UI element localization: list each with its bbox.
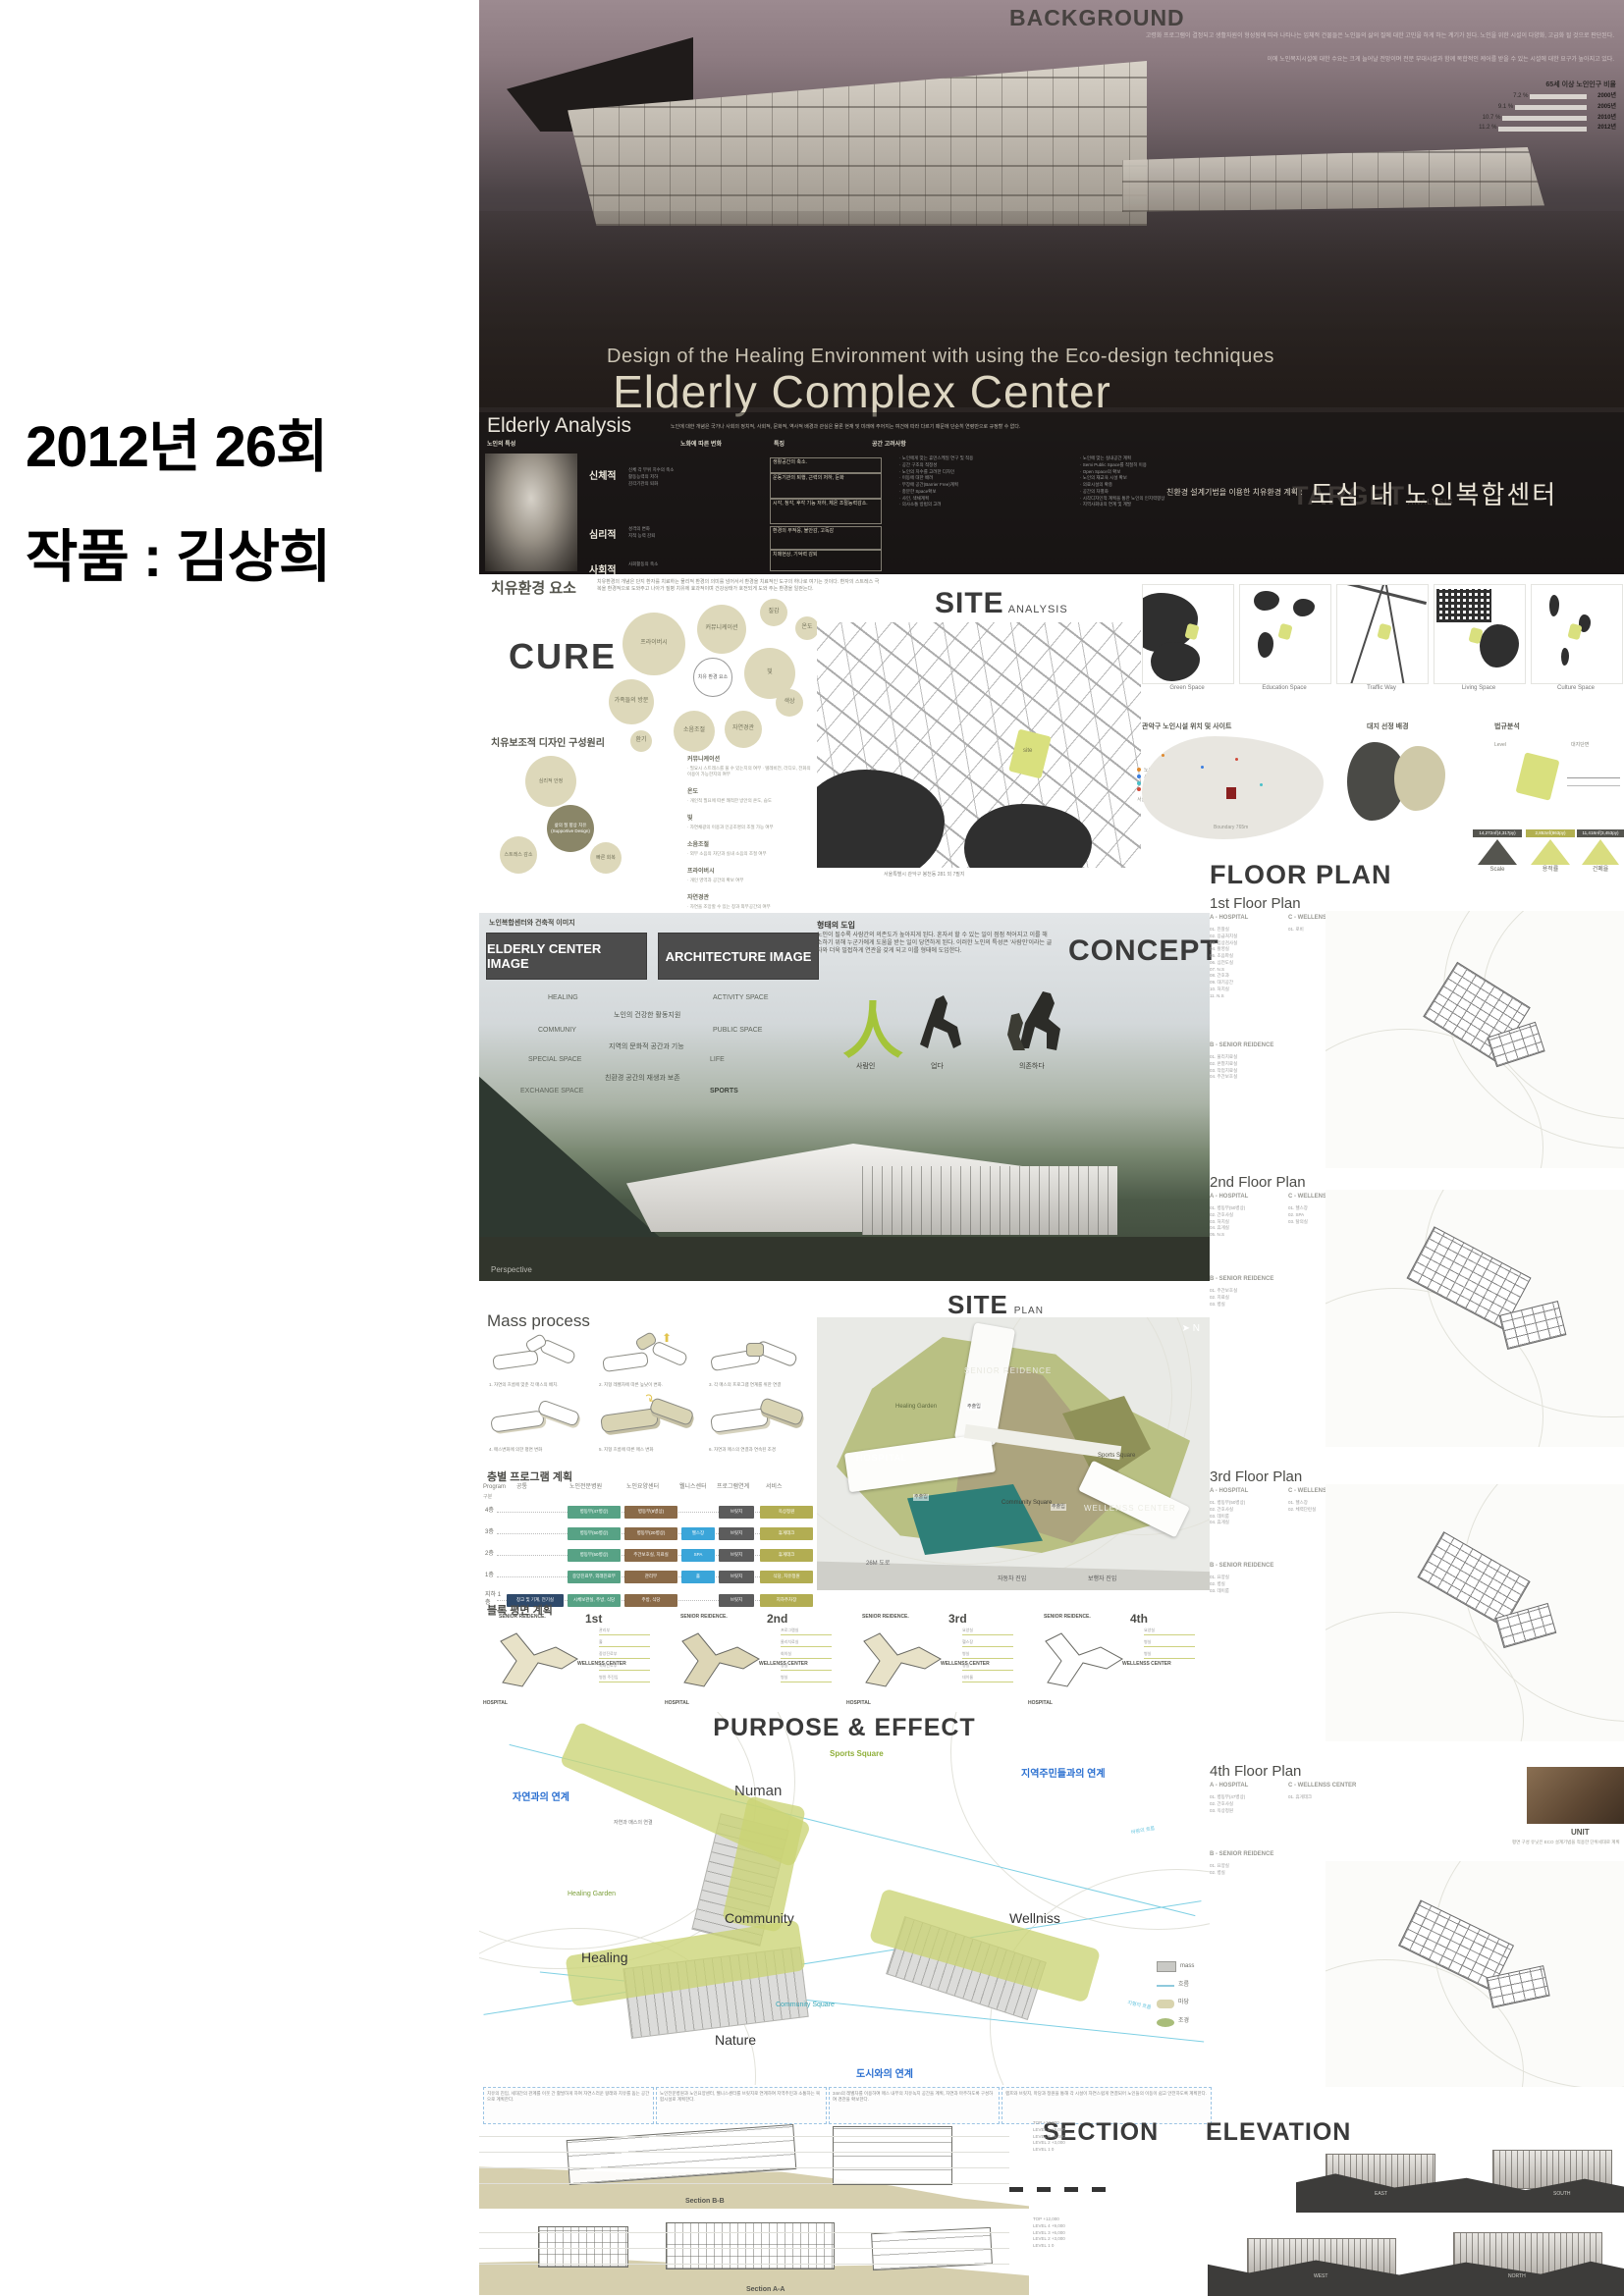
block-plan-4: SENIOR REIDENCE. 4th WELLENSS CENTER HOS… — [1028, 1614, 1205, 1708]
perspective-label: Perspective — [491, 1265, 532, 1275]
table-header: 프로그램연계 — [717, 1484, 749, 1492]
analysis-band: Elderly Analysis 노인에 대한 개념은 국가나 사회의 정치적,… — [479, 412, 1624, 574]
room-list-a: 01. 병동부(47병상)02. 간호사실03. 옥상정원 — [1210, 1794, 1274, 1814]
room-item: 03. 옥상정원 — [1210, 1808, 1274, 1815]
healing-factor-diagram: 프라이버시 커뮤니케이션 질감 온도 가족들의 방문 빛 환기 소음조절 자연경… — [579, 591, 835, 770]
chart-bar-row: 9.1 % 2005년 — [1471, 104, 1616, 112]
map-blob — [1480, 624, 1519, 667]
program-cell: 식당, 치유정원 — [760, 1571, 813, 1583]
mass-step-caption: 1. 자연의 흐름에 맞춘 각 매스의 배치. — [489, 1382, 587, 1388]
level-label: LEVEL 1 0 — [1033, 2147, 1121, 2154]
bar-category-label: 2000년 — [1587, 93, 1616, 101]
concept-title: CONCEPT — [1068, 934, 1219, 968]
room-item: 02. 치료실 — [1210, 1295, 1274, 1302]
site-analysis-sub: ANALYSIS — [1008, 604, 1068, 615]
legend-dot — [1137, 774, 1141, 778]
section-bb-label: Section B-B — [685, 2197, 725, 2206]
floor-plan-title: FLOOR PLAN — [1210, 860, 1392, 890]
callout-label: 데이룸 — [962, 1675, 1013, 1682]
block-hospital-label: HOSPITAL — [1028, 1700, 1053, 1707]
label-road: 26M 도로 — [866, 1561, 890, 1569]
principle-term: 커뮤니케이션 — [687, 757, 720, 763]
elderly-population-chart: 65세 이상 노인인구 비율 7.2 % 2000년 9.1 % 2005년 1… — [1471, 80, 1616, 133]
room-item: 08. 간호과 — [1210, 973, 1274, 980]
presentation-board: 2012년 26회 작품 : 김상희 BACKGROUND 고령화 프로그램이 … — [0, 0, 1624, 2296]
room-item: 04. 휴게실 — [1210, 1225, 1274, 1232]
mass-step-figure — [707, 1398, 809, 1443]
callout-label: 회의실 — [781, 1651, 832, 1659]
korean-subtitle: 친환경 설계기법을 이용한 치유환경 계획 : 도심 내 노인복합센터 — [1166, 475, 1557, 511]
program-cell: 브릿지 — [719, 1527, 754, 1540]
scale-bar — [1009, 2187, 1117, 2192]
program-cell: 브릿지 — [719, 1571, 754, 1583]
site-section-line — [1567, 777, 1620, 778]
section-bb-drawing — [479, 2118, 1029, 2209]
room-list-b: 01. 물리치료실02. 온열치료실03. 작업치료실04. 주간보호실 — [1210, 1054, 1274, 1081]
program-cell: 병동부(50병상) — [568, 1549, 621, 1562]
room-item: 11. N.S — [1210, 993, 1274, 1000]
concept-subheader: 노인복합센터와 건축적 이미지 — [489, 919, 575, 928]
bar-value-label: 11.2 % — [1479, 125, 1496, 133]
changes-list: 사회활동의 축소 — [628, 561, 676, 568]
legend-label: 흐름 — [1178, 1982, 1189, 1990]
figure-carrying-icon — [918, 993, 969, 1054]
program-cell: 브릿지 — [719, 1594, 754, 1607]
site-plan-drawing: SENIOR REIDENCE Healing Garden HOSPITAL … — [817, 1317, 1210, 1590]
program-cell: 중앙진료부, 외래진료부 — [568, 1571, 621, 1583]
map-caption: 서울특별시 관악구 봉천동 281 외 7필지 — [884, 872, 964, 879]
legend-planting-icon — [1157, 2018, 1174, 2027]
table-header: 노인전문병원 — [569, 1484, 602, 1492]
program-cell: 관리부 — [624, 1571, 677, 1583]
plan-sub-b: B - SENIOR REIDENCE — [1210, 1042, 1273, 1050]
consideration-item: · 노인에게 맞는 휴먼스케일 연구 및 적용 — [899, 455, 1074, 462]
mass-step-figure: ↷ — [597, 1398, 699, 1443]
principle-desc: · 자연채광의 이용과 인공조명의 조절 가능 여부 — [687, 825, 813, 830]
plan-sub-b: B - SENIOR REIDENCE — [1210, 1851, 1273, 1859]
room-item: 01. 병동부(50병상) — [1210, 1205, 1274, 1212]
consideration-item: · Semi Public Space를 적절히 이용 — [1080, 462, 1267, 469]
col-header: 공간 고려사항 — [872, 442, 906, 450]
consideration-item: · 무장애 공간(Barrier Free)계획 — [899, 482, 1074, 489]
north-arrow-icon: ➤ N — [1182, 1323, 1200, 1334]
consideration-item: · 충분한 Space확보 — [899, 489, 1074, 496]
elevation-row-1: EAST SOUTH — [1296, 2132, 1624, 2213]
label-numan: Numan — [734, 1783, 782, 1799]
level-label: Level — [1494, 742, 1506, 749]
figure-label: 의존하다 — [1019, 1062, 1045, 1071]
change-item: 신체 각 부위 치수의 축소 — [628, 467, 676, 474]
program-plan-title: 층별 프로그램 계획 — [487, 1468, 572, 1484]
stat-far: 2,853㎡(863py) 용적률 — [1526, 829, 1575, 875]
concept-right-item: ACTIVITY SPACE — [713, 993, 769, 1002]
mass-process-grid: ⬆ ↷ — [487, 1335, 815, 1463]
bar-value-label: 9.1 % — [1498, 104, 1513, 112]
bubble-center: 치유 환경 요소 — [693, 658, 732, 697]
map-blob — [1394, 746, 1445, 811]
purpose-legend: mass 흐름 마당 조경 — [1157, 1961, 1194, 2027]
label-community-square: Community Square — [776, 2001, 835, 2009]
program-cell: 병동부(47병상) — [568, 1506, 621, 1519]
room-item: 01. 물리치료실 — [1210, 1054, 1274, 1061]
bubble: 색상 — [776, 689, 803, 717]
block-massing-icon — [483, 1626, 591, 1694]
label-ped-entry: 보행자 진입 — [1088, 1576, 1116, 1584]
diagram-satellite: 스트레스 감소 — [500, 836, 537, 874]
block-ordinal: 2nd — [767, 1612, 787, 1626]
room-item: 03. 데이룸 — [1210, 1588, 1274, 1595]
dense-block — [1436, 589, 1491, 622]
board-caption-author: 작품 : 김상희 — [26, 510, 330, 593]
table-header: Program — [483, 1484, 506, 1492]
site-highlight — [1184, 623, 1199, 640]
block-hospital-label: HOSPITAL — [665, 1700, 689, 1707]
bar-category-label: 2012년 — [1587, 125, 1616, 133]
background-paragraph-1: 고령화 프로그램이 결정되고 생활자원이 형성됨에 따라 나타나는 입체적 건물… — [1108, 33, 1614, 41]
map-caption: Living Space — [1434, 685, 1524, 693]
room-item: 03. 병실 — [1210, 1302, 1274, 1308]
label-healing: Healing — [581, 1949, 627, 1965]
background-title: BACKGROUND — [1009, 5, 1185, 31]
callout-label: 물리치료실 — [781, 1639, 832, 1647]
level-label: LEVEL 3 +6,000 — [1033, 2230, 1121, 2237]
block-callouts: 요양실헬스장병실병실데이룸 — [962, 1628, 1013, 1686]
elderly-analysis-note: 노인에 대한 개념은 국가나 사회의 정치적, 사회적, 문화적, 역사적 배경… — [671, 424, 1220, 431]
block-senior-label: SENIOR REIDENCE. — [499, 1614, 546, 1621]
room-item: 02. 간호사실 — [1210, 1507, 1274, 1514]
room-list-b: 01. 주간보호실02. 치료실03. 병실 — [1210, 1288, 1274, 1308]
bubble: 프라이버시 — [623, 613, 685, 675]
consideration-item: · 공간 구조의 적정성 — [899, 462, 1074, 469]
label-car-entry: 자동차 진입 — [998, 1576, 1026, 1584]
level-label: TOP +12,000 — [1033, 2216, 1121, 2223]
plan-sub-c: C - WELLENSS CENTER — [1288, 1783, 1356, 1790]
bubble: 자연경관 — [725, 711, 762, 748]
label-entry: 주출입 — [913, 1494, 929, 1501]
site-shape — [1515, 752, 1559, 800]
unit-photo — [1527, 1767, 1624, 1824]
site-highlight — [1377, 623, 1391, 640]
plan-sub-a: A - HOSPITAL — [1210, 1488, 1248, 1496]
room-list-c: 01. 휴게데크 — [1288, 1794, 1357, 1801]
map-blob — [1561, 648, 1569, 666]
change-item: 활동능력의 저하 — [628, 474, 676, 481]
block-massing-icon — [846, 1626, 954, 1694]
concept-mid-item: 노인의 건강한 활동지원 — [614, 1011, 680, 1020]
building-render-wing — [862, 1166, 1117, 1235]
principle-term: 프라이버시 — [687, 869, 715, 875]
col-header: 특징 — [774, 442, 785, 450]
block-hospital-label: HOSPITAL — [846, 1700, 871, 1707]
room-list-a: 01. 병동부(50병상)02. 간호사실03. 데이룸04. 휴게실 — [1210, 1500, 1274, 1526]
site-highlight — [1277, 623, 1292, 640]
mass-step-caption: 6. 자연과 매스의 연결과 연속된 조경 — [709, 1447, 811, 1453]
legend-dot — [1137, 768, 1141, 772]
background-paragraph-2: 이에 노인복지시설에 대한 수요는 크게 늘어날 전망이며 전문 부대시설과 함… — [1166, 57, 1614, 65]
room-item: 09. 대기공간 — [1210, 980, 1274, 987]
room-list-b: 01. 요양실02. 병실 — [1210, 1863, 1274, 1877]
site-selection-map — [1343, 736, 1461, 839]
mass-step-caption: 3. 각 매스의 프로그램 연계를 위한 연결 — [709, 1382, 811, 1388]
legend-flow-icon — [1157, 1985, 1174, 1987]
program-cell: 휴게데크 — [760, 1527, 813, 1540]
level-label: TOP +12,000 — [1033, 2120, 1121, 2127]
program-cell: 휴게데크 — [760, 1549, 813, 1562]
category-label: 신체적 — [589, 467, 617, 482]
site-highlight — [1567, 623, 1582, 640]
map-caption: Green Space — [1142, 685, 1232, 693]
label-nature-mass: 자연과 매스의 연결 — [614, 1820, 653, 1827]
label-senior: SENIOR REIDENCE — [964, 1366, 1052, 1376]
bubble: 가족들의 방문 — [609, 679, 654, 724]
program-cell: 병동부(20병상) — [624, 1527, 677, 1540]
bar-value-label: 7.2 % — [1513, 93, 1528, 101]
bar — [1515, 105, 1587, 110]
bar-category-label: 2005년 — [1587, 104, 1616, 112]
poi-dot — [1162, 754, 1164, 757]
site-plan-sub: PLAN — [1014, 1306, 1044, 1316]
elevation-row-2: WEST NORTH — [1208, 2215, 1624, 2296]
label-link-city: 도시와의 연계 — [856, 2065, 913, 2080]
stat-label: 건폐율 — [1577, 867, 1624, 875]
principle-term: 온도 — [687, 789, 698, 795]
stat-bcr: 11,418㎡(3,453py) 건폐율 — [1577, 829, 1624, 875]
program-cell: SPA — [681, 1549, 715, 1562]
plan-header: 4th Floor Plan — [1210, 1763, 1301, 1780]
room-item: 10. 처치실 — [1210, 987, 1274, 993]
stat-triangle — [1582, 839, 1619, 865]
diagram-satellite: 빠른 회복 — [590, 842, 622, 874]
label-entry: 주출입 — [1051, 1504, 1066, 1511]
stat-label: 용적률 — [1526, 867, 1575, 875]
principle-term: 소음조절 — [687, 842, 709, 848]
room-item: 02. 온열치료실 — [1210, 1061, 1274, 1068]
stat-label: Scale — [1473, 867, 1522, 875]
col-header: 노화에 따른 변화 — [680, 442, 722, 450]
mass-step-figure: ⬆ — [597, 1335, 699, 1380]
poi-dot — [1201, 766, 1204, 769]
map-blob — [1549, 595, 1559, 616]
section-aa-levels: TOP +12,000LEVEL 4 +9,000LEVEL 3 +6,000L… — [1033, 2216, 1121, 2250]
form-text: 노인이 될수록 사람간의 의존도가 높아지게 된다. 혼자서 할 수 있는 일이… — [817, 933, 1053, 955]
col-header: 노인의 특성 — [487, 442, 515, 450]
consideration-item: · 이동에 대한 배려 — [899, 475, 1074, 482]
plan-drawing — [1326, 1190, 1624, 1447]
bar — [1530, 94, 1587, 99]
room-item: 02. 간호사실 — [1210, 1212, 1274, 1219]
plan-sub-b: B - SENIOR REIDENCE — [1210, 1276, 1273, 1284]
north-label: N — [1193, 1323, 1200, 1334]
legend-mass-icon — [1157, 1961, 1176, 1972]
stat-value: 2,853㎡(863py) — [1526, 829, 1575, 837]
site-section-line — [1567, 785, 1620, 786]
bar — [1502, 116, 1587, 121]
bar-category-label: 2010년 — [1587, 115, 1616, 123]
map-blob — [1258, 632, 1273, 658]
concept-right-item: SPORTS — [710, 1087, 738, 1095]
category-label: 사회적 — [589, 561, 617, 574]
callout-label: 병원 주진입 — [599, 1675, 650, 1682]
principle-term: 빛 — [687, 816, 693, 822]
plan-header: 2nd Floor Plan — [1210, 1174, 1306, 1191]
concept-mid-item: 친환경 공간의 재생과 보존 — [605, 1074, 680, 1083]
level-label: LEVEL 2 +3,000 — [1033, 2236, 1121, 2243]
table-header: 웰니스센터 — [679, 1484, 707, 1492]
legend-label: 마당 — [1178, 2000, 1189, 2007]
mass-step-caption: 5. 지형 흐름에 따른 매스 변화 — [599, 1447, 697, 1453]
callout-label: 관리부 — [599, 1628, 650, 1635]
principle-term: 자연경관 — [687, 895, 709, 901]
mass-step-figure — [487, 1398, 589, 1443]
room-item: 01. 요양실 — [1210, 1575, 1274, 1581]
site-marker — [1226, 787, 1236, 799]
level-label: LEVEL 1 0 — [1033, 2243, 1121, 2250]
room-item: 01. 요양실 — [1210, 1863, 1274, 1870]
legend-yard-icon — [1157, 2000, 1174, 2008]
table-gubun: 구분 — [483, 1494, 492, 1501]
callout-label: 홀 — [599, 1639, 650, 1647]
map-blob — [1254, 591, 1279, 611]
block-senior-label: SENIOR REIDENCE. — [680, 1614, 728, 1621]
elevation-label-north: NORTH — [1508, 2273, 1526, 2280]
plan-header: 1st Floor Plan — [1210, 895, 1301, 912]
label-sports-square: Sports Square — [1098, 1453, 1135, 1461]
thematic-map — [1239, 584, 1331, 684]
section-bb-levels: TOP +12,000LEVEL 4 +9,000LEVEL 3 +6,000L… — [1033, 2120, 1121, 2154]
section-label: 대지단면 — [1571, 742, 1589, 749]
label-wellness: WELLENSS CENTER — [1084, 1504, 1176, 1514]
table-header: 공통 — [516, 1484, 527, 1492]
level-label: LEVEL 4 +9,000 — [1033, 2127, 1121, 2134]
stat-value: 14,272㎡(4,317py) — [1473, 829, 1522, 837]
bubble: 소음조절 — [674, 711, 715, 752]
label-link-region: 지역주민들과의 연계 — [1021, 1765, 1106, 1780]
project-title-en: Elderly Complex Center — [538, 365, 1186, 418]
floor-label: 1층 — [485, 1573, 494, 1580]
person-glyph: 人 — [842, 982, 903, 1070]
section-aa-drawing — [479, 2216, 1029, 2295]
change-item: 사회활동의 축소 — [628, 561, 676, 568]
label-link-nature: 자연과의 연계 — [513, 1789, 569, 1803]
block-massing-icon — [665, 1626, 773, 1694]
level-label: LEVEL 4 +9,000 — [1033, 2223, 1121, 2230]
block-plan-1: SENIOR REIDENCE. 1st WELLENSS CENTER HOS… — [483, 1614, 660, 1708]
figure-dependent-icon — [1000, 989, 1068, 1054]
room-item: 02. 병실 — [1210, 1870, 1274, 1877]
concept-mid-item: 지역의 문화적 공간과 기능 — [609, 1042, 684, 1051]
label-entry: 주출입 — [966, 1404, 982, 1411]
room-item: 01. 주간보호실 — [1210, 1288, 1274, 1295]
plan-header: 3rd Floor Plan — [1210, 1468, 1302, 1485]
label-healing-garden: Healing Garden — [895, 1404, 937, 1412]
figure-label: 사람인 — [856, 1062, 875, 1071]
label-healing-garden: Healing Garden — [568, 1890, 616, 1898]
feature-box: 생활공간의 축소. — [770, 457, 882, 473]
thematic-map — [1531, 584, 1623, 684]
board-caption-year: 2012년 26회 — [26, 400, 327, 483]
chart-bar-row: 7.2 % 2000년 — [1471, 93, 1616, 101]
room-item: 04. 촬영실 — [1210, 946, 1274, 953]
map-caption: Education Space — [1239, 685, 1329, 693]
thematic-map — [1142, 584, 1234, 684]
callout-label: 병실 — [781, 1675, 832, 1682]
callout-label: 프로그램실 — [781, 1628, 832, 1635]
mass-step-figure — [707, 1335, 809, 1380]
room-item: 05. 초음파실 — [1210, 953, 1274, 960]
block-ordinal: 3rd — [948, 1612, 967, 1626]
plan-sub-a: A - HOSPITAL — [1210, 1783, 1248, 1790]
elderly-analysis-title: Elderly Analysis — [487, 414, 631, 438]
legend-label: mass — [1180, 1963, 1194, 1971]
level-label: LEVEL 3 +6,000 — [1033, 2134, 1121, 2141]
cure-header: 치유환경 요소 — [491, 577, 576, 598]
figure-label: 업다 — [931, 1062, 944, 1071]
program-cell: 옥상정원 — [760, 1506, 813, 1519]
room-list-a: 01. 병동부(50병상)02. 간호사실03. 처치실04. 휴게실05. N… — [1210, 1205, 1274, 1239]
chart-title: 65세 이상 노인인구 비율 — [1471, 80, 1616, 89]
program-cell: 병동부(8병상) — [624, 1506, 677, 1519]
consideration-item: · 의사소통 방법의 고려 — [899, 502, 1074, 508]
bubble: 온도 — [795, 616, 819, 640]
label-community: Community — [725, 1910, 794, 1926]
architecture-image-box: ARCHITECTURE IMAGE — [658, 933, 819, 980]
block-plan-2: SENIOR REIDENCE. 2nd WELLENSS CENTER HOS… — [665, 1614, 841, 1708]
callout-label: 병실 — [962, 1663, 1013, 1671]
room-list-a: 01. 진찰실02. 응급처치실03. 임상검사실04. 촬영실05. 초음파실… — [1210, 927, 1274, 999]
plan-drawing — [1326, 911, 1624, 1168]
mass-process-title: Mass process — [487, 1311, 590, 1331]
stat-scale: 14,272㎡(4,317py) Scale — [1473, 829, 1522, 875]
callout-label: 외래진료부 — [599, 1663, 650, 1671]
diagram-center: 삶의 질 향상 치유 (Supportive Design) — [547, 805, 594, 852]
plan-drawing — [1326, 1861, 1624, 2087]
principle-desc: · 외부 소음의 차단과 실내 소음의 조절 여부 — [687, 851, 813, 857]
legend-dot — [1137, 787, 1141, 791]
label-community-square: Community Square — [1001, 1500, 1052, 1508]
floor-label: 2층 — [485, 1551, 494, 1559]
boundary-label: Boundary 765m — [1214, 825, 1248, 831]
block-ordinal: 4th — [1130, 1612, 1148, 1626]
mass-step-figure — [487, 1335, 589, 1380]
site-plan-title: SITE — [947, 1290, 1008, 1320]
room-item: 01. 휴게데크 — [1288, 1794, 1357, 1801]
chart-bar-row: 10.7 % 2010년 — [1471, 115, 1616, 123]
room-item: 04. 휴게실 — [1210, 1520, 1274, 1526]
site-plan-header: SITE PLAN — [947, 1290, 1044, 1320]
block-callouts: 프로그램실물리치료실회의실병실병실 — [781, 1628, 832, 1686]
room-item: 02. 응급처치실 — [1210, 934, 1274, 940]
mass-step-caption: 4. 매스변화에 의한 평면 변화 — [489, 1447, 587, 1453]
program-cell: 브릿지 — [719, 1549, 754, 1562]
room-list-b: 01. 요양실02. 병실03. 데이룸 — [1210, 1575, 1274, 1594]
change-item: 지적 능력 감퇴 — [628, 533, 676, 540]
site-label: site — [1023, 748, 1032, 756]
feature-box: 치매현상, 기억력 감퇴 — [770, 550, 882, 571]
plan-sub-b: B - SENIOR REIDENCE — [1210, 1563, 1273, 1571]
table-header: 서비스 — [766, 1484, 783, 1492]
program-cell: 지하주차장 — [760, 1594, 813, 1607]
floor-label: 3층 — [485, 1529, 494, 1537]
legend-dot — [1137, 781, 1141, 785]
concept-left-item: COMMUNIY — [538, 1026, 576, 1035]
sub-section-title: 법규분석 — [1494, 722, 1520, 731]
floor-label: 4층 — [485, 1508, 494, 1516]
principle-desc: · 자연을 조망할 수 있는 창과 외부공간의 여부 — [687, 904, 813, 910]
room-item: 04. 주간보호실 — [1210, 1074, 1274, 1081]
stat-value: 11,418㎡(3,453py) — [1577, 829, 1624, 837]
city-map: site — [817, 622, 1141, 868]
concept-left-item: HEALING — [548, 993, 578, 1002]
